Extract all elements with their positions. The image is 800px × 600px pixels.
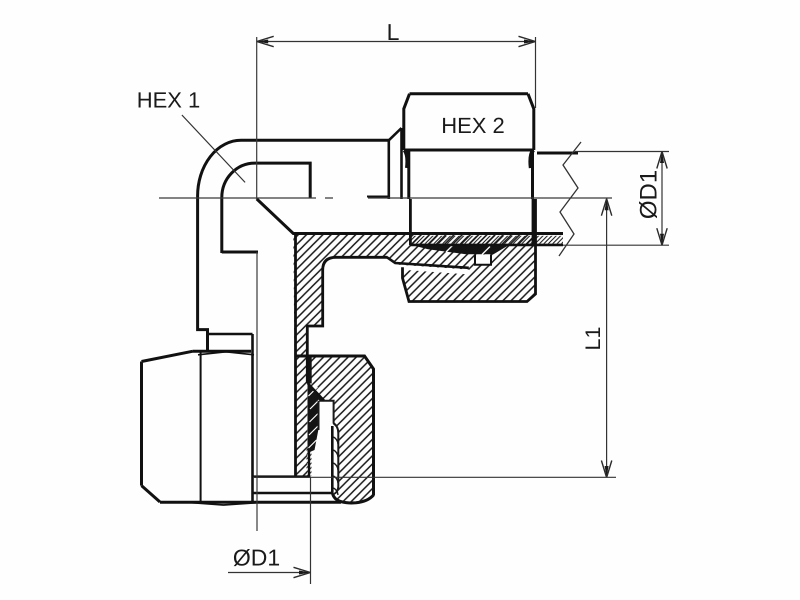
svg-text:HEX 1: HEX 1 [137, 87, 201, 112]
svg-text:ØD1: ØD1 [636, 170, 663, 219]
svg-text:HEX 2: HEX 2 [441, 113, 505, 138]
svg-text:ØD1: ØD1 [233, 544, 280, 570]
svg-text:L1: L1 [581, 327, 605, 351]
svg-text:L: L [387, 19, 400, 45]
